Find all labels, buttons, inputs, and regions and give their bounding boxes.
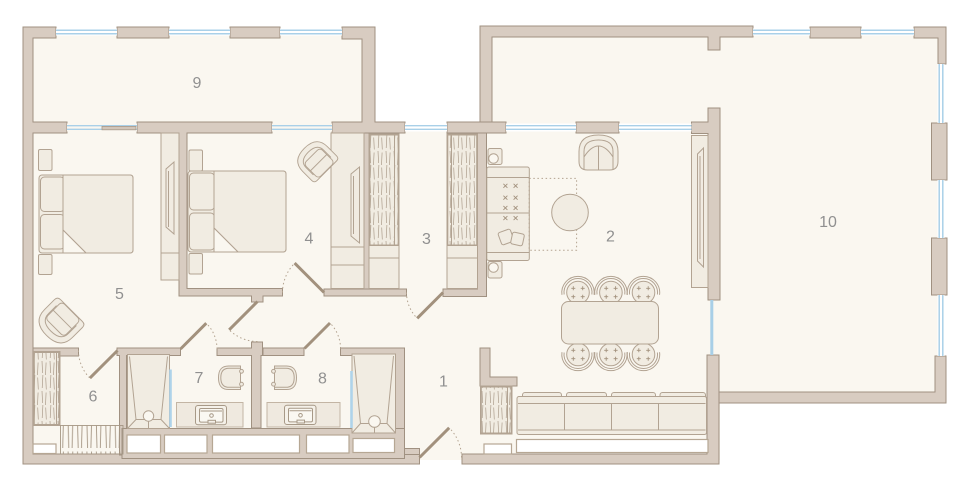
svg-text:6: 6 bbox=[89, 389, 98, 406]
svg-text:2: 2 bbox=[606, 229, 615, 246]
svg-text:9: 9 bbox=[193, 75, 202, 92]
svg-text:4: 4 bbox=[305, 231, 314, 248]
svg-text:1: 1 bbox=[439, 374, 448, 391]
svg-text:10: 10 bbox=[819, 214, 837, 231]
svg-text:3: 3 bbox=[422, 231, 431, 248]
svg-text:5: 5 bbox=[115, 286, 124, 303]
svg-text:7: 7 bbox=[195, 370, 204, 387]
svg-text:8: 8 bbox=[318, 371, 327, 388]
